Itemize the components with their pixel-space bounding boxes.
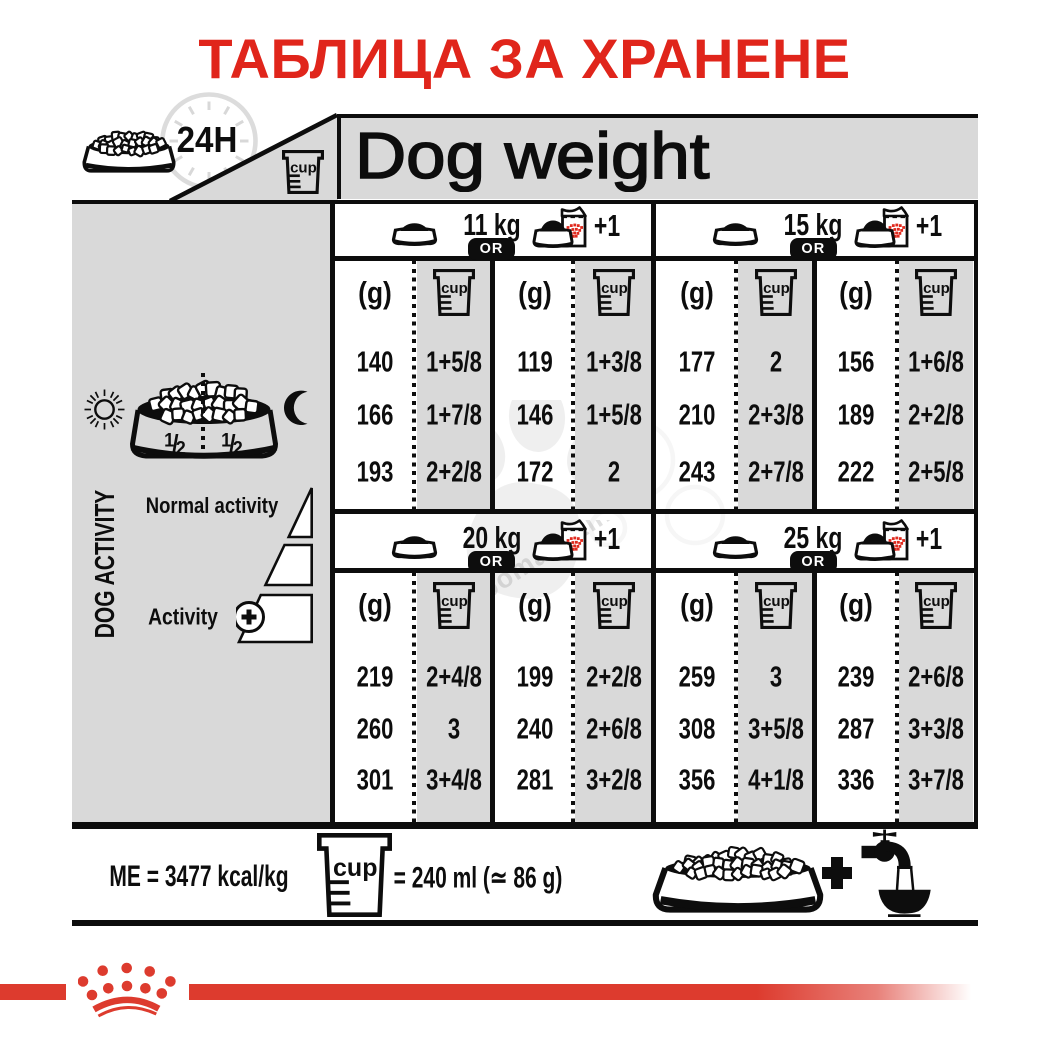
svg-text:cup: cup <box>601 279 628 296</box>
svg-text:cup: cup <box>763 592 790 609</box>
svg-text:cup: cup <box>923 592 950 609</box>
svg-text:cup: cup <box>441 279 468 296</box>
svg-text:cup: cup <box>601 592 628 609</box>
svg-text:cup: cup <box>763 279 790 296</box>
svg-text:cup: cup <box>333 854 377 882</box>
svg-text:cup: cup <box>923 279 950 296</box>
svg-text:cup: cup <box>441 592 468 609</box>
svg-text:cup: cup <box>290 159 317 176</box>
